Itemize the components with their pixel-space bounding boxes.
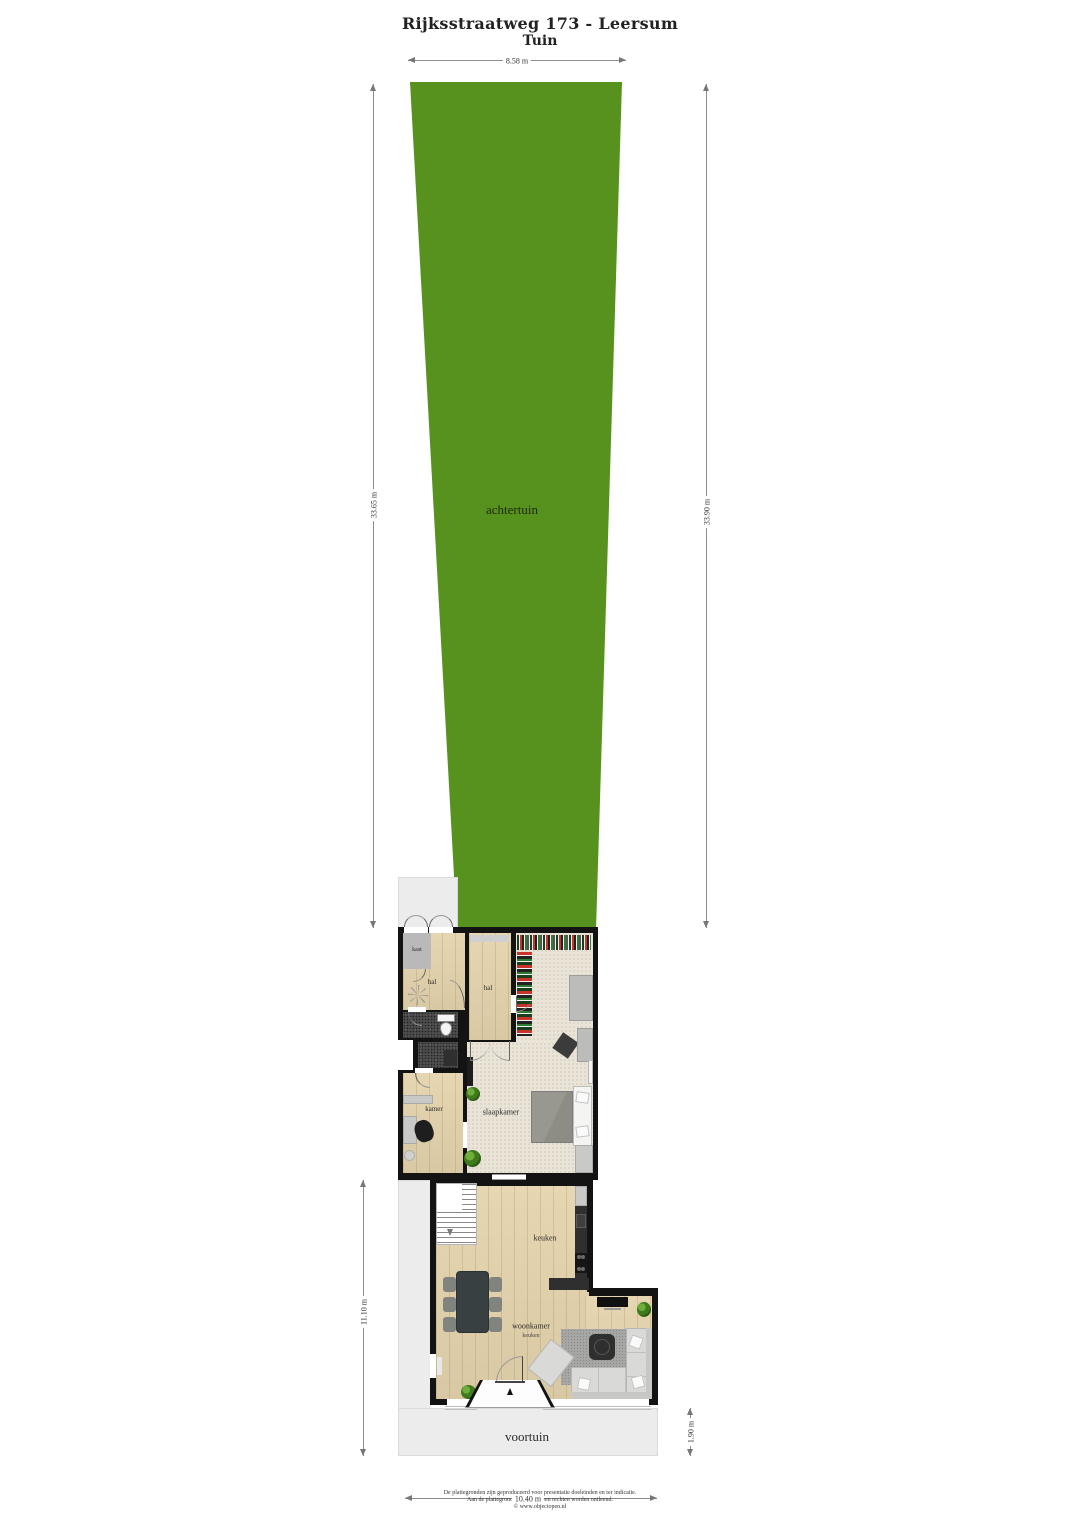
entrance-arrow-icon	[507, 1388, 513, 1395]
door-opening	[463, 1122, 467, 1148]
clothes-rack-icon	[517, 935, 591, 950]
kitchen-counter	[575, 1186, 587, 1206]
facade-notch	[398, 1040, 413, 1070]
living-room-sublabel: keuken	[522, 1333, 539, 1339]
closet-label: kast	[412, 947, 422, 953]
window-sill	[437, 1357, 442, 1375]
dining-chair-icon	[489, 1277, 502, 1292]
plant-icon	[637, 1302, 651, 1317]
stool	[404, 1150, 415, 1161]
disclaimer-copyright: © www.objectopen.nl	[0, 1504, 1080, 1511]
coffee-table-icon	[589, 1334, 615, 1360]
front-garden-label: voortuin	[505, 1429, 549, 1445]
dining-chair-icon	[443, 1277, 456, 1292]
dimension-label-lower-left: 11.10 m	[360, 1296, 369, 1328]
window-sill	[543, 1406, 651, 1410]
arrowhead-icon	[408, 57, 415, 63]
stairs-direction-arrow	[447, 1229, 453, 1236]
stove-icon	[575, 1253, 587, 1273]
sofa-backrest	[646, 1328, 652, 1399]
dimension-label-garden-width: 8.58 m	[503, 57, 531, 66]
shelf	[403, 1095, 433, 1104]
page-subtitle: Tuin	[0, 33, 1080, 49]
arrowhead-icon	[370, 921, 376, 928]
arrowhead-icon	[687, 1408, 693, 1415]
window	[545, 1399, 649, 1405]
kitchen-label: keuken	[533, 1234, 556, 1243]
dimension-label-bottom: 10.40 m	[512, 1495, 544, 1504]
front-door	[495, 1381, 525, 1383]
kitchen-sink-icon	[576, 1214, 586, 1228]
ceiling-light-icon	[408, 985, 428, 1005]
tv-icon	[597, 1297, 628, 1307]
pillow-icon	[575, 1091, 589, 1104]
bedroom-label: slaapkamer	[483, 1108, 519, 1117]
bedroom-cabinet	[577, 1028, 593, 1062]
arrowhead-icon	[687, 1449, 693, 1456]
arrowhead-icon	[703, 921, 709, 928]
toilet-icon	[437, 1014, 455, 1022]
doormat	[470, 935, 509, 942]
dimension-label-garden-left: 33.65 m	[370, 489, 379, 521]
arrowhead-icon	[360, 1180, 366, 1187]
kitchen-counter	[549, 1278, 589, 1290]
living-room-label: woonkamer	[512, 1322, 550, 1331]
dining-chair-icon	[489, 1317, 502, 1332]
plant-icon	[466, 1087, 480, 1101]
garden-door-opening	[404, 927, 428, 933]
bed-icon	[531, 1091, 573, 1143]
wardrobe-cabinet	[569, 975, 593, 1021]
dining-table-icon	[456, 1271, 489, 1333]
back-garden-label: achtertuin	[486, 502, 538, 518]
page-title: Rijksstraatweg 173 - Leersum	[0, 14, 1080, 33]
tv-icon	[467, 1057, 473, 1086]
sink-icon	[444, 1050, 457, 1066]
dining-chair-icon	[443, 1297, 456, 1312]
clothes-rack-icon	[517, 952, 532, 1036]
hall-left-label: hal	[428, 978, 437, 986]
tv-stand	[604, 1308, 621, 1310]
side-path	[398, 1180, 431, 1410]
bedroom-dresser	[575, 1145, 593, 1173]
stairs-icon	[462, 1184, 476, 1211]
pillow-icon	[575, 1125, 589, 1138]
sofa-backrest	[571, 1392, 652, 1399]
radiator	[588, 1060, 593, 1084]
dining-chair-icon	[489, 1297, 502, 1312]
arrowhead-icon	[619, 57, 626, 63]
stairs-icon	[437, 1212, 476, 1243]
pillow-icon	[577, 1377, 591, 1391]
study-label: kamer	[425, 1105, 443, 1113]
plant-icon	[464, 1150, 481, 1167]
arrowhead-icon	[360, 1449, 366, 1456]
garden-door-opening	[429, 927, 453, 933]
arrowhead-icon	[370, 84, 376, 91]
hall-right-label: hal	[484, 984, 493, 992]
kitchen-side-wall	[587, 1180, 593, 1292]
dimension-label-garden-right: 33.90 m	[703, 496, 712, 528]
dining-chair-icon	[443, 1317, 456, 1332]
floorplan-canvas: Rijksstraatweg 173 - Leersum Tuin 8.58 m…	[0, 0, 1080, 1527]
porch-step-edge	[465, 1407, 555, 1408]
window	[430, 1354, 436, 1378]
dimension-label-front-garden: 1.90 m	[687, 1418, 696, 1446]
arrowhead-icon	[703, 84, 709, 91]
